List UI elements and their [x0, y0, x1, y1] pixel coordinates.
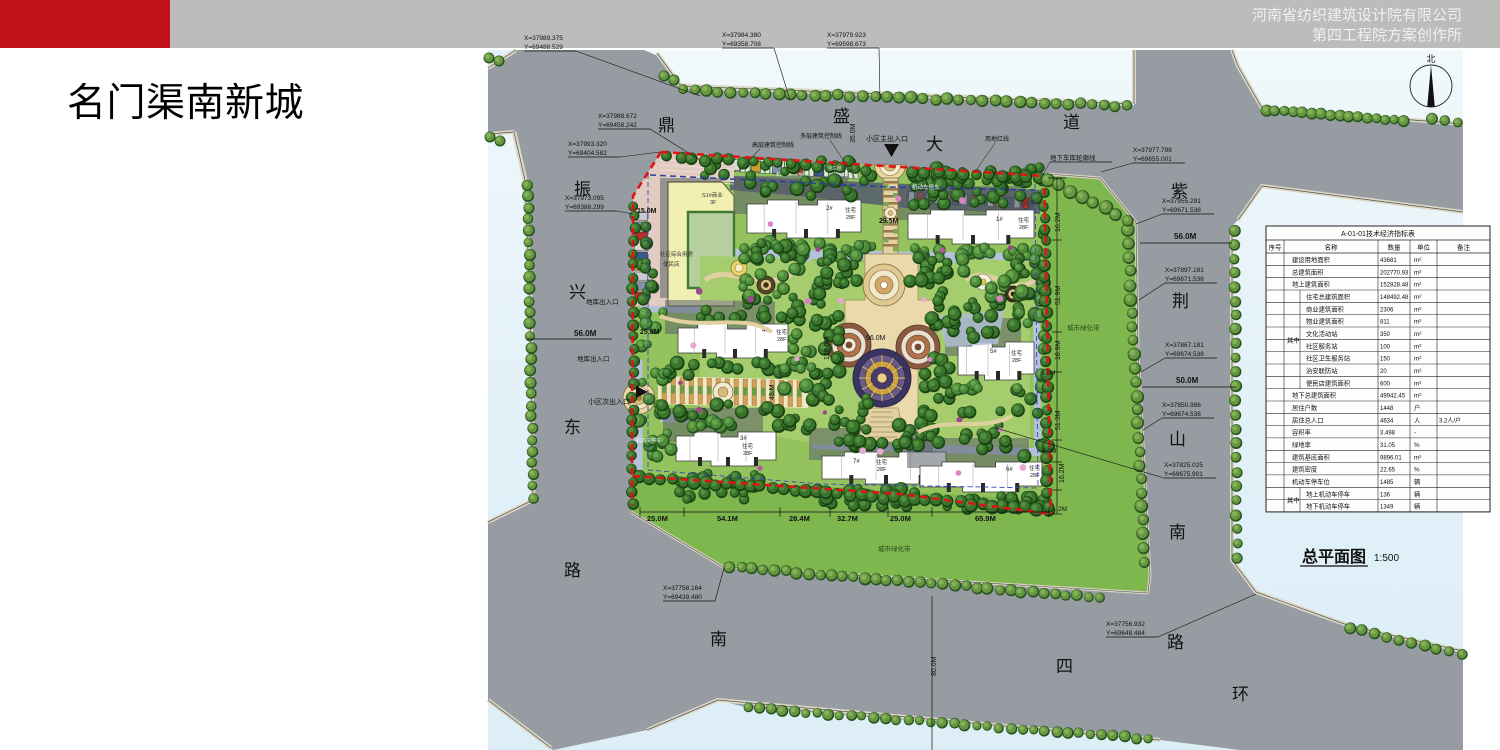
svg-text:辆: 辆: [1414, 477, 1420, 486]
svg-text:河南省纺织建筑设计院有限公司: 河南省纺织建筑设计院有限公司: [1252, 6, 1462, 24]
svg-text:X=37979.923: X=37979.923: [827, 32, 866, 39]
svg-text:m²: m²: [1414, 356, 1421, 363]
svg-text:盛: 盛: [833, 107, 850, 126]
svg-text:28F: 28F: [1012, 358, 1022, 364]
svg-text:住宅: 住宅: [1011, 349, 1023, 357]
svg-text:3F: 3F: [710, 200, 717, 206]
svg-text:16.2M: 16.2M: [1055, 212, 1062, 232]
svg-text:住宅: 住宅: [1018, 216, 1030, 224]
svg-text:X=37988.672: X=37988.672: [598, 113, 637, 120]
svg-text:城市绿化带: 城市绿化带: [878, 544, 911, 553]
svg-text:Y=69439.480: Y=69439.480: [663, 594, 702, 601]
svg-text:m²: m²: [1414, 368, 1421, 375]
svg-text:建筑密度: 建筑密度: [1292, 465, 1318, 474]
svg-text:6.0M: 6.0M: [1042, 448, 1056, 455]
svg-text:兴: 兴: [569, 283, 586, 302]
svg-text:49942.45: 49942.45: [1380, 394, 1406, 400]
svg-text:150: 150: [1380, 357, 1391, 363]
svg-text:北: 北: [1426, 54, 1435, 64]
svg-text:人: 人: [1414, 416, 1421, 424]
svg-text:序号: 序号: [1269, 243, 1283, 252]
svg-text:其中: 其中: [1287, 496, 1300, 505]
svg-text:辆: 辆: [1414, 502, 1420, 511]
svg-text:152828.48: 152828.48: [1380, 283, 1409, 289]
svg-text:总建筑面积: 总建筑面积: [1292, 267, 1324, 276]
svg-text:X=37867.181: X=37867.181: [1165, 342, 1204, 349]
svg-text:m²: m²: [1414, 343, 1421, 350]
svg-text:3.2人/户: 3.2人/户: [1439, 416, 1461, 424]
svg-text:住宅总建筑面积: 住宅总建筑面积: [1306, 292, 1351, 301]
svg-text:m²: m²: [1414, 269, 1421, 276]
svg-text:96.0M: 96.0M: [866, 335, 886, 342]
svg-text:容积率: 容积率: [1292, 428, 1311, 437]
svg-text:7#: 7#: [853, 459, 860, 465]
svg-text:28F: 28F: [846, 215, 856, 221]
svg-text:住宅: 住宅: [1029, 464, 1041, 472]
svg-text:Y=69358.708: Y=69358.708: [722, 41, 761, 48]
svg-text:城市绿化带: 城市绿化带: [1067, 323, 1100, 332]
svg-text:28F: 28F: [1019, 225, 1029, 231]
svg-text:多层建筑控制线: 多层建筑控制线: [800, 132, 842, 140]
svg-text:X=37977.798: X=37977.798: [1133, 147, 1172, 154]
svg-text:Y=69388.299: Y=69388.299: [565, 204, 604, 211]
svg-text:1448: 1448: [1380, 406, 1394, 412]
svg-text:泊车场: 泊车场: [1020, 200, 1035, 207]
svg-text:地库出入口: 地库出入口: [586, 297, 619, 306]
svg-text:54.1M: 54.1M: [717, 514, 738, 523]
svg-text:Y=69404.582: Y=69404.582: [568, 150, 607, 157]
svg-text:m²: m²: [1414, 380, 1421, 387]
svg-text:20: 20: [1380, 369, 1387, 375]
svg-text:数量: 数量: [1388, 243, 1402, 252]
svg-text:600: 600: [1380, 381, 1391, 387]
svg-text:X=37993.320: X=37993.320: [568, 141, 607, 148]
svg-text:山: 山: [1169, 430, 1186, 449]
svg-text:X=37758.164: X=37758.164: [663, 585, 702, 592]
svg-text:50.0M: 50.0M: [1176, 376, 1199, 385]
svg-text:m²: m²: [1414, 294, 1421, 301]
svg-text:振: 振: [574, 180, 591, 199]
svg-text:136: 136: [1380, 492, 1391, 498]
svg-text:总平面图: 总平面图: [1302, 547, 1366, 566]
svg-text:住宅: 住宅: [776, 328, 788, 336]
svg-text:m²: m²: [1414, 306, 1421, 313]
svg-text:148492.48: 148492.48: [1380, 295, 1409, 301]
svg-text:四: 四: [1056, 657, 1073, 676]
svg-text:X=37984.380: X=37984.380: [722, 32, 761, 39]
svg-text:25.0M: 25.0M: [647, 514, 668, 523]
svg-text:用地红线: 用地红线: [985, 135, 1009, 143]
svg-text:X=37825.025: X=37825.025: [1164, 462, 1203, 469]
svg-text:28F: 28F: [877, 467, 887, 473]
svg-text:居住总人口: 居住总人口: [1292, 415, 1323, 424]
svg-text:环: 环: [1232, 685, 1249, 704]
svg-text:小区次出入口: 小区次出入口: [588, 397, 630, 406]
svg-text:2#: 2#: [826, 206, 833, 212]
svg-text:X=37989.375: X=37989.375: [524, 35, 563, 42]
svg-text:南: 南: [1169, 523, 1186, 542]
svg-text:商业建筑面积: 商业建筑面积: [1306, 304, 1344, 313]
svg-text:3.498: 3.498: [1380, 431, 1396, 437]
svg-text:6.0M: 6.0M: [1041, 370, 1055, 377]
svg-text:机动车停车位: 机动车停车位: [1292, 477, 1330, 486]
svg-text:18.9M: 18.9M: [1055, 340, 1062, 360]
svg-text:地上机动车停车: 地上机动车停车: [1306, 489, 1350, 498]
svg-text:住宅: 住宅: [876, 458, 888, 466]
svg-text:X=37897.181: X=37897.181: [1165, 267, 1204, 274]
svg-text:荆: 荆: [1172, 292, 1189, 311]
svg-text:32.7M: 32.7M: [837, 514, 858, 523]
svg-text:Y=69598.673: Y=69598.673: [827, 41, 866, 48]
svg-text:-: -: [1414, 430, 1416, 437]
svg-text:m²: m²: [1414, 393, 1421, 400]
svg-text:51.9M: 51.9M: [1055, 285, 1062, 305]
svg-text:16.2M: 16.2M: [1059, 463, 1066, 483]
svg-text:文化活动站: 文化活动站: [1306, 329, 1338, 338]
svg-text:28F: 28F: [1030, 473, 1040, 479]
svg-text:Y=69675.901: Y=69675.901: [1164, 471, 1203, 478]
svg-text:居住户数: 居住户数: [1292, 403, 1318, 412]
svg-text:Y=69674.538: Y=69674.538: [1162, 411, 1201, 418]
svg-text:Y=69671.538: Y=69671.538: [1162, 207, 1201, 214]
svg-text:m²: m²: [1414, 454, 1421, 461]
svg-text:m²: m²: [1414, 331, 1421, 338]
svg-text:1#: 1#: [996, 217, 1003, 223]
svg-text:绿地率: 绿地率: [1292, 440, 1311, 449]
svg-text:建设用地面积: 建设用地面积: [1292, 255, 1330, 264]
svg-text:6#: 6#: [1006, 467, 1013, 473]
svg-text:5#: 5#: [990, 349, 997, 355]
svg-text:25.0M: 25.0M: [890, 514, 911, 523]
svg-text:29.5M: 29.5M: [879, 218, 899, 225]
svg-text:单车棚: 单车棚: [828, 165, 842, 172]
svg-text:其中: 其中: [1287, 335, 1300, 344]
svg-text:治安联防站: 治安联防站: [1306, 366, 1338, 375]
svg-text:便民店建筑面积: 便民店建筑面积: [1306, 378, 1351, 387]
svg-text:%: %: [1414, 467, 1420, 474]
svg-text:Y=69458.242: Y=69458.242: [598, 122, 637, 129]
svg-text:辆: 辆: [1414, 489, 1420, 498]
svg-text:31.05: 31.05: [1380, 443, 1396, 449]
svg-text:道: 道: [1063, 113, 1080, 132]
svg-text:南: 南: [710, 630, 727, 649]
svg-text:机动车停车: 机动车停车: [912, 183, 940, 191]
svg-text:1:500: 1:500: [1374, 553, 1399, 564]
svg-text:社区卫生服务站: 社区卫生服务站: [1306, 354, 1351, 363]
svg-text:126.0M: 126.0M: [824, 336, 831, 360]
svg-text:100: 100: [1380, 344, 1391, 350]
svg-text:43681: 43681: [1380, 258, 1397, 264]
svg-text:S1#商业: S1#商业: [702, 191, 723, 199]
svg-text:备注: 备注: [1457, 243, 1471, 252]
svg-text:大: 大: [926, 135, 943, 154]
svg-text:%: %: [1414, 442, 1420, 449]
svg-text:Y=69488.529: Y=69488.529: [524, 44, 563, 51]
svg-text:东: 东: [564, 418, 581, 437]
svg-text:户: 户: [1414, 403, 1420, 412]
svg-text:m²: m²: [1414, 282, 1421, 289]
svg-text:小区主出入口: 小区主出入口: [866, 134, 908, 143]
svg-text:地上建筑面积: 地上建筑面积: [1292, 280, 1330, 289]
svg-text:地下机动车停车: 地下机动车停车: [1306, 502, 1350, 511]
svg-text:X=37756.932: X=37756.932: [1106, 621, 1145, 628]
svg-text:15.0M: 15.0M: [637, 208, 657, 215]
svg-text:56.0M: 56.0M: [574, 329, 597, 338]
svg-text:名门渠南新城: 名门渠南新城: [67, 82, 304, 125]
svg-text:名称: 名称: [1325, 243, 1339, 252]
svg-text:45.M: 45.M: [769, 384, 776, 400]
svg-text:机动车停车: 机动车停车: [636, 437, 661, 444]
svg-text:单位: 单位: [1417, 243, 1431, 252]
svg-text:51.3M: 51.3M: [1055, 410, 1062, 430]
svg-text:m²: m²: [1414, 319, 1421, 326]
svg-text:80.0M: 80.0M: [931, 656, 938, 676]
svg-text:第四工程院方案创作所: 第四工程院方案创作所: [1312, 26, 1462, 44]
svg-text:住宅: 住宅: [845, 206, 857, 214]
svg-text:物业建筑面积: 物业建筑面积: [1306, 317, 1344, 326]
svg-text:3#: 3#: [740, 436, 747, 442]
svg-text:28.4M: 28.4M: [789, 514, 810, 523]
svg-text:56.0M: 56.0M: [1174, 232, 1197, 241]
svg-text:35.0M: 35.0M: [850, 123, 857, 143]
svg-text:2306: 2306: [1380, 307, 1394, 313]
svg-text:202770.93: 202770.93: [1380, 270, 1409, 276]
svg-text:便民店: 便民店: [663, 260, 680, 268]
svg-text:m²: m²: [1414, 257, 1421, 264]
svg-text:A-01-01技术经济指标表: A-01-01技术经济指标表: [1341, 229, 1415, 238]
svg-text:建筑基底面积: 建筑基底面积: [1292, 452, 1330, 461]
svg-text:28F: 28F: [743, 451, 753, 457]
svg-text:350: 350: [1380, 332, 1391, 338]
svg-text:Y=69671.538: Y=69671.538: [1165, 276, 1204, 283]
svg-text:25.0M: 25.0M: [640, 329, 660, 336]
svg-text:X=37850.986: X=37850.986: [1162, 402, 1201, 409]
svg-text:28F: 28F: [777, 337, 787, 343]
svg-text:65.9M: 65.9M: [975, 514, 996, 523]
svg-text:高层建筑控制线: 高层建筑控制线: [752, 141, 794, 149]
svg-text:路: 路: [1167, 633, 1184, 652]
svg-text:社区综合用房: 社区综合用房: [660, 250, 694, 258]
svg-text:1485: 1485: [1380, 480, 1394, 486]
svg-text:Y=69648.484: Y=69648.484: [1106, 630, 1145, 637]
svg-text:紫: 紫: [1171, 182, 1188, 201]
svg-text:Y=69655.001: Y=69655.001: [1133, 156, 1172, 163]
svg-text:路: 路: [564, 561, 581, 580]
svg-text:1349: 1349: [1380, 505, 1394, 511]
svg-text:Y=69674.538: Y=69674.538: [1165, 351, 1204, 358]
svg-text:地库出入口: 地库出入口: [577, 354, 610, 363]
svg-text:社区服务站: 社区服务站: [1306, 341, 1338, 350]
svg-text:地下总建筑面积: 地下总建筑面积: [1292, 391, 1337, 400]
svg-text:4634: 4634: [1380, 418, 1394, 424]
svg-text:地下车库轮廓线: 地下车库轮廓线: [1050, 153, 1096, 162]
svg-text:2M: 2M: [1058, 506, 1067, 513]
svg-text:811: 811: [1380, 320, 1390, 326]
svg-text:9896.01: 9896.01: [1380, 455, 1402, 461]
svg-text:鼎: 鼎: [658, 116, 675, 135]
svg-text:住宅: 住宅: [742, 442, 754, 450]
svg-text:22.65: 22.65: [1380, 468, 1396, 474]
